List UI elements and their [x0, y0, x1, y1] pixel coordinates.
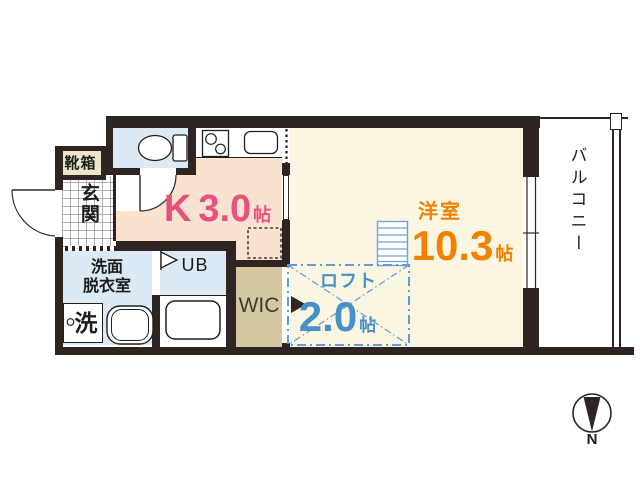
wic-label: WIC — [234, 294, 284, 319]
kitchen-label: K 3.0 帖 — [160, 188, 275, 232]
entrance-door-arc — [12, 190, 55, 236]
main-room-size-unit: 帖 — [495, 244, 513, 265]
kitchen-sink-icon — [245, 132, 278, 154]
loft-size-unit: 帖 — [359, 316, 376, 336]
kitchen-size-unit: 帖 — [253, 205, 271, 226]
kitchen-size: 3.0 — [198, 188, 251, 232]
toilet-tank-icon — [173, 135, 187, 161]
stove-burner-1 — [206, 134, 217, 145]
kitchen-letter: K — [164, 188, 191, 232]
loft-size: 2.0 帖 — [285, 293, 390, 341]
main-room-label: 洋室 — [418, 201, 462, 224]
washroom-label: 洗面 脱衣室 — [65, 258, 149, 296]
stove-icon — [203, 131, 229, 157]
shoe-box-label: 靴箱 — [58, 150, 103, 177]
compass-north-label: N — [583, 432, 601, 448]
unit-bath-label: UB — [175, 253, 215, 277]
main-room-size: 10.3 帖 — [405, 222, 520, 270]
main-room-size-value: 10.3 — [412, 222, 494, 270]
loft-label: ロフト — [320, 271, 377, 292]
refrigerator-space-dashed — [248, 228, 281, 258]
entrance-label: 玄関 — [77, 183, 99, 241]
toilet-bowl-icon — [139, 136, 172, 161]
vanity-sink-icon — [107, 306, 153, 344]
balcony-label: バルコニー — [567, 146, 587, 306]
floorplan-canvas: 靴箱 玄関 K 3.0 帖 洗面 脱衣室 洗 UB WIC 洋室 10.3 帖 … — [0, 0, 640, 480]
compass-needle-icon — [584, 397, 601, 432]
bathtub-icon — [166, 301, 220, 339]
loft-size-value: 2.0 — [299, 293, 357, 341]
stove-burner-2 — [216, 144, 226, 154]
washer-label: 洗 — [70, 307, 102, 339]
